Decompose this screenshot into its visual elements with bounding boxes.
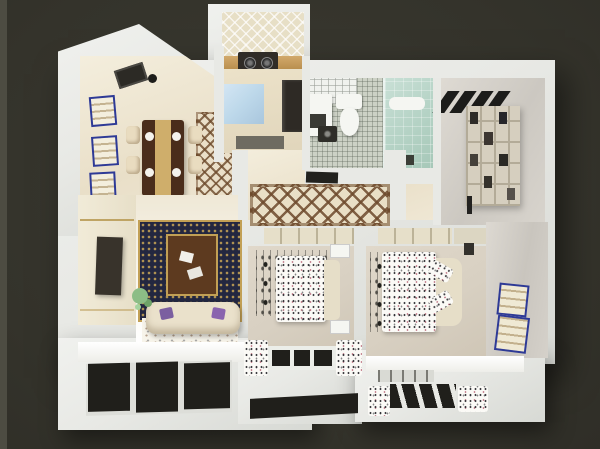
books [470, 112, 478, 124]
plate [172, 168, 181, 177]
apartment-3d-floorplan [0, 0, 600, 449]
wall-art-frame [89, 95, 118, 127]
balcony-glass-pane [88, 363, 130, 412]
window-pane [272, 350, 290, 366]
sofa [146, 302, 240, 334]
plant [132, 288, 148, 304]
books [484, 132, 493, 145]
bedroom2-closet [264, 228, 354, 244]
books [484, 176, 492, 188]
ceiling-lamp-dot [148, 74, 157, 83]
books [499, 112, 507, 124]
plate [172, 132, 181, 141]
master-bed [382, 252, 436, 332]
nightstand [330, 244, 350, 258]
shower-towel [389, 97, 425, 110]
master-right-wall [486, 222, 548, 358]
hallway-ceiling-vent [306, 171, 338, 183]
toilet-bowl [340, 108, 359, 136]
books [499, 154, 508, 166]
tv-wall-trim [80, 195, 134, 221]
bedroom2-window [268, 346, 336, 370]
master-closet-side [454, 228, 486, 244]
tv-wall-baseline [80, 309, 134, 311]
bay-curtain [368, 386, 390, 416]
plate [145, 168, 154, 177]
wall-art-frame [494, 314, 530, 354]
paper [187, 266, 203, 280]
balcony-glass [86, 360, 232, 416]
kitchen-doormat [236, 136, 284, 149]
master-accessory [464, 243, 474, 255]
wall-kitchen-bathroom [302, 56, 310, 170]
books [507, 188, 515, 200]
coffee-table [166, 234, 218, 296]
books [470, 154, 478, 166]
television [95, 237, 123, 296]
plate [145, 132, 154, 141]
bookshelf [466, 106, 520, 206]
washing-machine [318, 126, 337, 142]
wall-art-frame [91, 135, 119, 167]
background-left-band [0, 0, 7, 449]
kitchen-island-counter [222, 84, 264, 124]
wall-dining-kitchen [214, 46, 224, 162]
master-closet [378, 228, 452, 244]
bedroom2-headboard [324, 260, 340, 320]
dining-chair [188, 126, 202, 144]
fridge-cabinet [282, 80, 304, 132]
tv-wall-panel [78, 195, 136, 325]
balcony-glass-pane [136, 362, 178, 413]
floor-lamp-bar [467, 196, 472, 214]
burner [261, 57, 273, 69]
sofa-pillow [211, 307, 226, 320]
table-runner [155, 120, 171, 196]
bedroom2-curtain [244, 340, 268, 376]
nightstand [330, 320, 350, 334]
kitchen-backsplash [222, 12, 304, 56]
burner [244, 57, 256, 69]
bedroom2-bed [276, 256, 326, 322]
dining-chair [126, 156, 140, 174]
window-pane [294, 350, 310, 366]
toilet-tank [336, 94, 362, 109]
dining-chair [126, 126, 140, 144]
bay-window-top [378, 370, 434, 382]
bedroom2-curtain [336, 340, 362, 376]
sofa-pillow [159, 307, 174, 320]
bay-window-glass [390, 384, 456, 408]
bay-curtain [458, 386, 488, 412]
wall-study-left [433, 78, 441, 225]
dining-chair [188, 156, 202, 174]
window-pane [314, 350, 332, 366]
hallway-runner-rug [250, 184, 390, 226]
balcony-glass-pane [184, 362, 230, 409]
paper [179, 251, 194, 264]
wall-art-frame [496, 283, 529, 318]
dining-table [142, 120, 184, 196]
